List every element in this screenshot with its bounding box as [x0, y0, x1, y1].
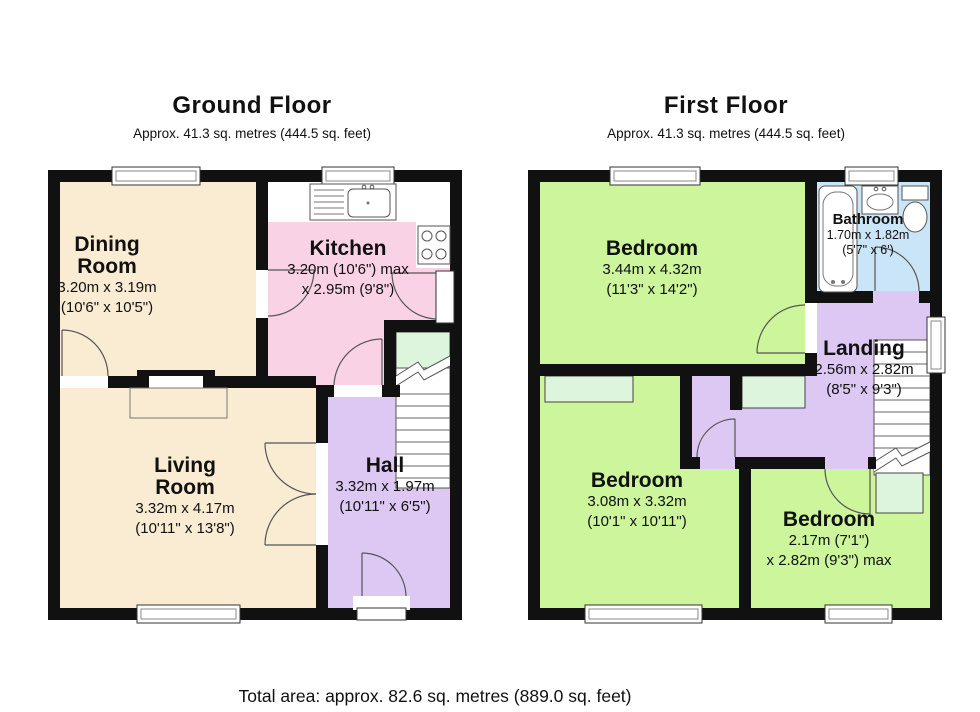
landing-label: Landing 2.56m x 2.82m (8'5" x 9'3") — [774, 338, 954, 400]
bedroom1-label: Bedroom 3.44m x 4.32m (11'3" x 14'2") — [552, 238, 752, 300]
ground-floor-title: Ground Floor — [102, 92, 402, 120]
room-name: Kitchen — [238, 238, 458, 260]
room-dims: (10'11" x 6'5") — [300, 497, 470, 517]
hall-label: Hall 3.32m x 1.97m (10'11" x 6'5") — [300, 455, 470, 517]
room-dims: x 2.82m (9'3") max — [724, 551, 934, 571]
bathroom-label: Bathroom 1.70m x 1.82m (5'7" x 6') — [808, 211, 928, 258]
living-room-label: Living Room 3.32m x 4.17m (10'11" x 13'8… — [85, 455, 285, 539]
first-floor-title: First Floor — [576, 92, 876, 120]
room-dims: 2.17m (7'1") — [724, 531, 934, 551]
room-dims: 3.20m x 3.19m — [17, 278, 197, 298]
room-name: Bedroom — [537, 470, 737, 492]
room-dims: (10'6" x 10'5") — [17, 298, 197, 318]
room-dims: 3.32m x 4.17m — [85, 499, 285, 519]
front-door — [353, 596, 410, 620]
floorplan-page: Ground Floor Approx. 41.3 sq. metres (44… — [0, 0, 980, 712]
room-dims: (5'7" x 6') — [808, 243, 928, 258]
bedroom2-cupboard — [545, 376, 633, 402]
bedroom3-label: Bedroom 2.17m (7'1") x 2.82m (9'3") max — [724, 509, 934, 571]
living-window — [137, 605, 240, 623]
room-dims: 2.56m x 2.82m — [774, 360, 954, 380]
kitchen-label: Kitchen 3.20m (10'6") max x 2.95m (9'8") — [238, 238, 458, 300]
chimney-breast — [137, 370, 215, 376]
bedroom3-cupboard — [876, 473, 923, 513]
room-dims: x 2.95m (9'8") — [238, 280, 458, 300]
bedroom3-window — [825, 605, 892, 623]
room-dims: (8'5" x 9'3") — [774, 380, 954, 400]
room-dims: 3.32m x 1.97m — [300, 477, 470, 497]
room-name: Bathroom — [808, 211, 928, 228]
room-name: Room — [17, 256, 197, 278]
room-dims: (10'11" x 13'8") — [85, 519, 285, 539]
room-dims: (11'3" x 14'2") — [552, 280, 752, 300]
bedroom1-window — [610, 167, 700, 185]
room-dims: 1.70m x 1.82m — [808, 228, 928, 243]
room-dims: (10'1" x 10'11") — [537, 512, 737, 532]
bedroom2-window — [585, 605, 702, 623]
room-name: Landing — [774, 338, 954, 360]
basin-icon — [862, 186, 898, 214]
first-floor-subtitle: Approx. 41.3 sq. metres (444.5 sq. feet) — [576, 126, 876, 141]
room-name: Bedroom — [552, 238, 752, 260]
kitchen-window — [322, 167, 394, 185]
fireplace-recess — [149, 376, 203, 388]
room-dims: 3.08m x 3.32m — [537, 492, 737, 512]
room-name: Dining — [17, 234, 197, 256]
room-name: Room — [85, 477, 285, 499]
bedroom2-label: Bedroom 3.08m x 3.32m (10'1" x 10'11") — [537, 470, 737, 532]
bathroom-window — [845, 167, 898, 185]
dining-window — [112, 167, 200, 185]
sink-unit-icon — [310, 184, 396, 220]
total-area-text: Total area: approx. 82.6 sq. metres (889… — [225, 686, 645, 707]
room-dims: 3.20m (10'6") max — [238, 260, 458, 280]
room-dims: 3.44m x 4.32m — [552, 260, 752, 280]
dining-room-label: Dining Room 3.20m x 3.19m (10'6" x 10'5"… — [17, 234, 197, 318]
room-name: Bedroom — [724, 509, 934, 531]
room-name: Hall — [300, 455, 470, 477]
ground-floor-subtitle: Approx. 41.3 sq. metres (444.5 sq. feet) — [102, 126, 402, 141]
room-name: Living — [85, 455, 285, 477]
